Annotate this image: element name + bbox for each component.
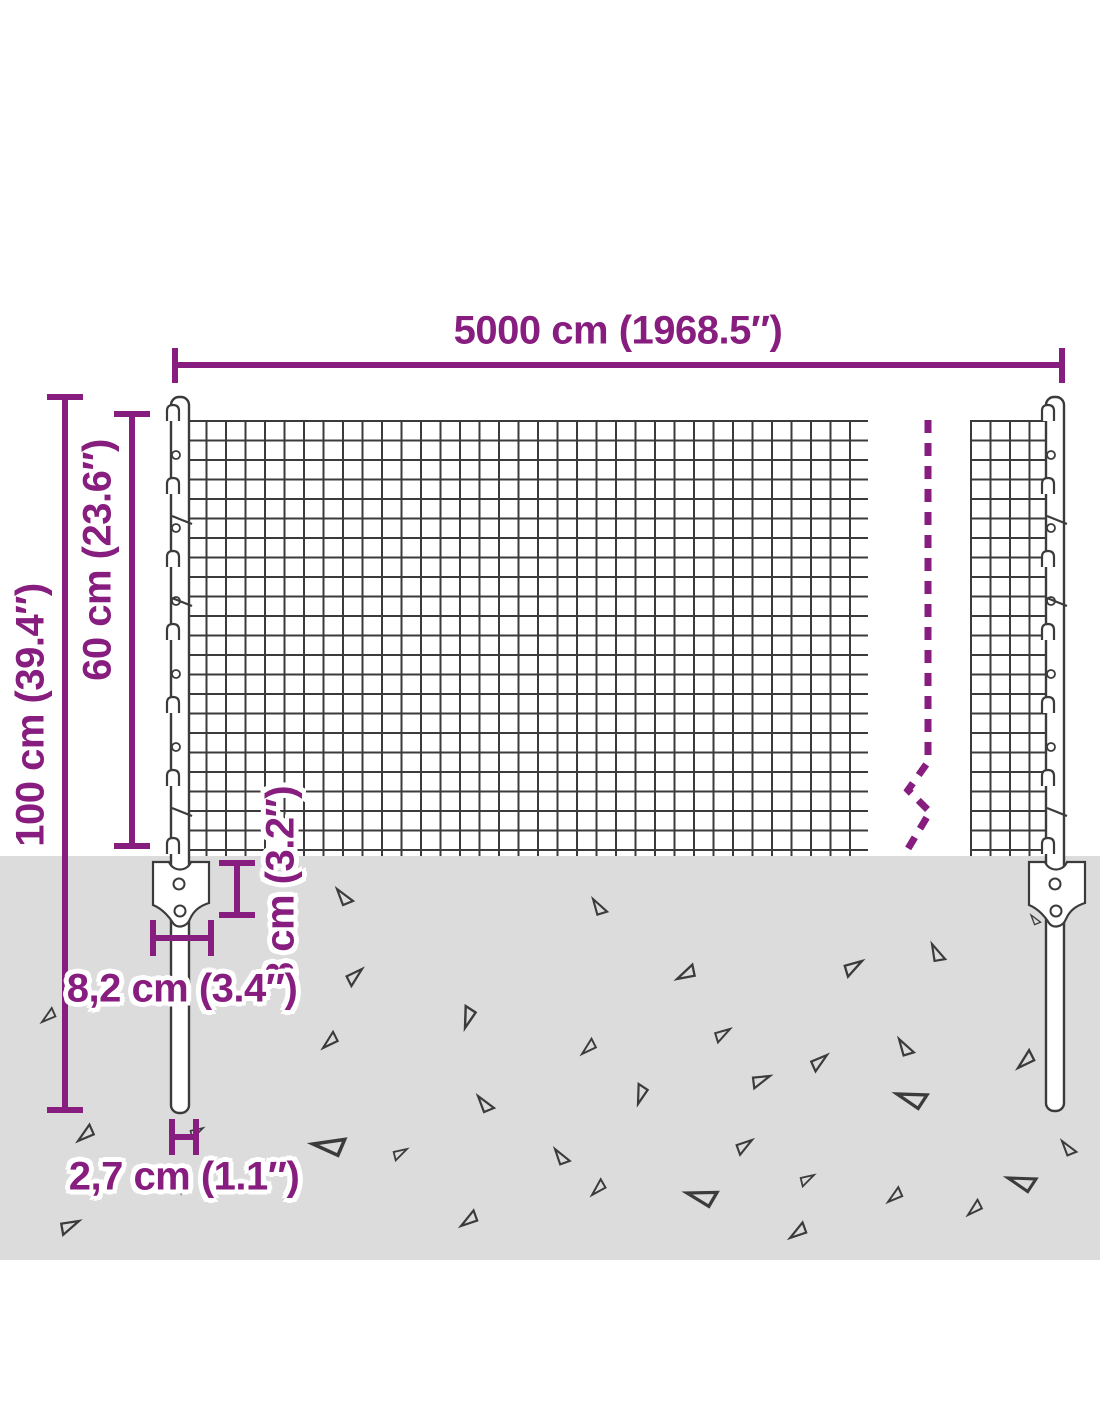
width-dimension-label: 5000 cm (1968.5″) bbox=[454, 309, 783, 354]
bracket-width-dimension-label: 8,2 cm (3.4″) bbox=[67, 967, 298, 1012]
post-diameter-dimension-label: 2,7 cm (1.1″) bbox=[69, 1155, 300, 1200]
mesh-height-dimension-label: 60 cm (23.6″) bbox=[76, 439, 121, 681]
anchor-depth-dimension-label: 8 cm (3.2″) bbox=[259, 786, 304, 984]
diagram-canvas bbox=[0, 0, 1100, 1422]
mesh-panel-right bbox=[970, 420, 1050, 856]
panel-break-line bbox=[906, 420, 930, 852]
height-dimension-label: 100 cm (39.4″) bbox=[9, 583, 54, 846]
fence-dimension-diagram: 5000 cm (1968.5″) 100 cm (39.4″) 60 cm (… bbox=[0, 0, 1100, 1422]
fence-post-right bbox=[1046, 397, 1064, 1111]
